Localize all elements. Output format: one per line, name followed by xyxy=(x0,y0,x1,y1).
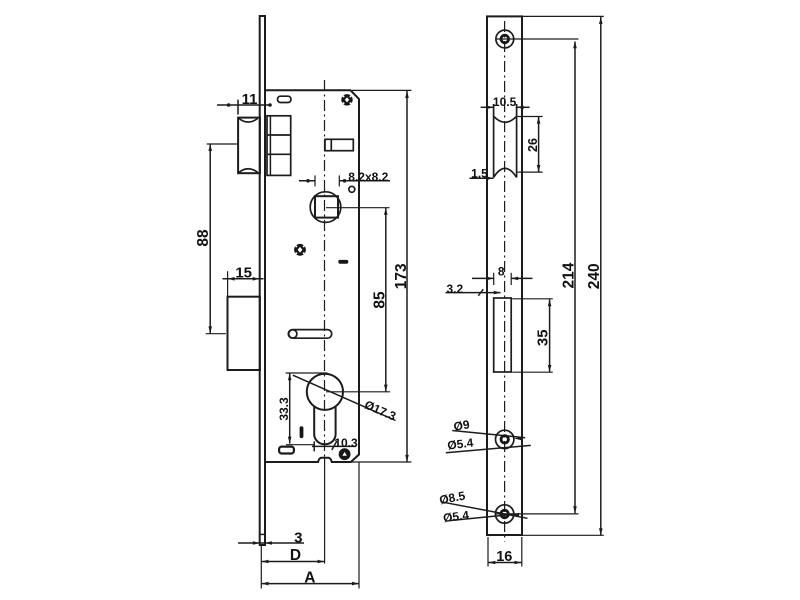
svg-text:214: 214 xyxy=(560,262,577,288)
svg-text:3: 3 xyxy=(294,530,302,547)
svg-text:Ø17.3: Ø17.3 xyxy=(362,398,398,424)
svg-text:173: 173 xyxy=(393,263,410,289)
svg-text:Ø9: Ø9 xyxy=(453,417,472,434)
svg-text:15: 15 xyxy=(235,265,252,282)
svg-text:Ø5.4: Ø5.4 xyxy=(442,508,470,525)
svg-text:D: D xyxy=(290,547,301,564)
svg-text:10.5: 10.5 xyxy=(493,95,517,109)
svg-text:8: 8 xyxy=(498,265,505,279)
svg-text:10.3: 10.3 xyxy=(334,436,358,450)
svg-text:8.2x8.2: 8.2x8.2 xyxy=(348,170,388,184)
svg-text:16: 16 xyxy=(496,549,512,565)
svg-text:240: 240 xyxy=(586,263,603,289)
svg-text:88: 88 xyxy=(195,229,212,247)
svg-text:Ø8.5: Ø8.5 xyxy=(438,488,467,507)
svg-text:1.5: 1.5 xyxy=(471,166,488,180)
svg-text:26: 26 xyxy=(526,138,540,152)
svg-text:3.2: 3.2 xyxy=(446,282,463,296)
svg-text:A: A xyxy=(304,569,315,586)
svg-text:35: 35 xyxy=(535,329,552,346)
svg-text:11: 11 xyxy=(242,91,258,108)
svg-text:85: 85 xyxy=(372,291,389,309)
svg-text:33.3: 33.3 xyxy=(277,397,291,421)
